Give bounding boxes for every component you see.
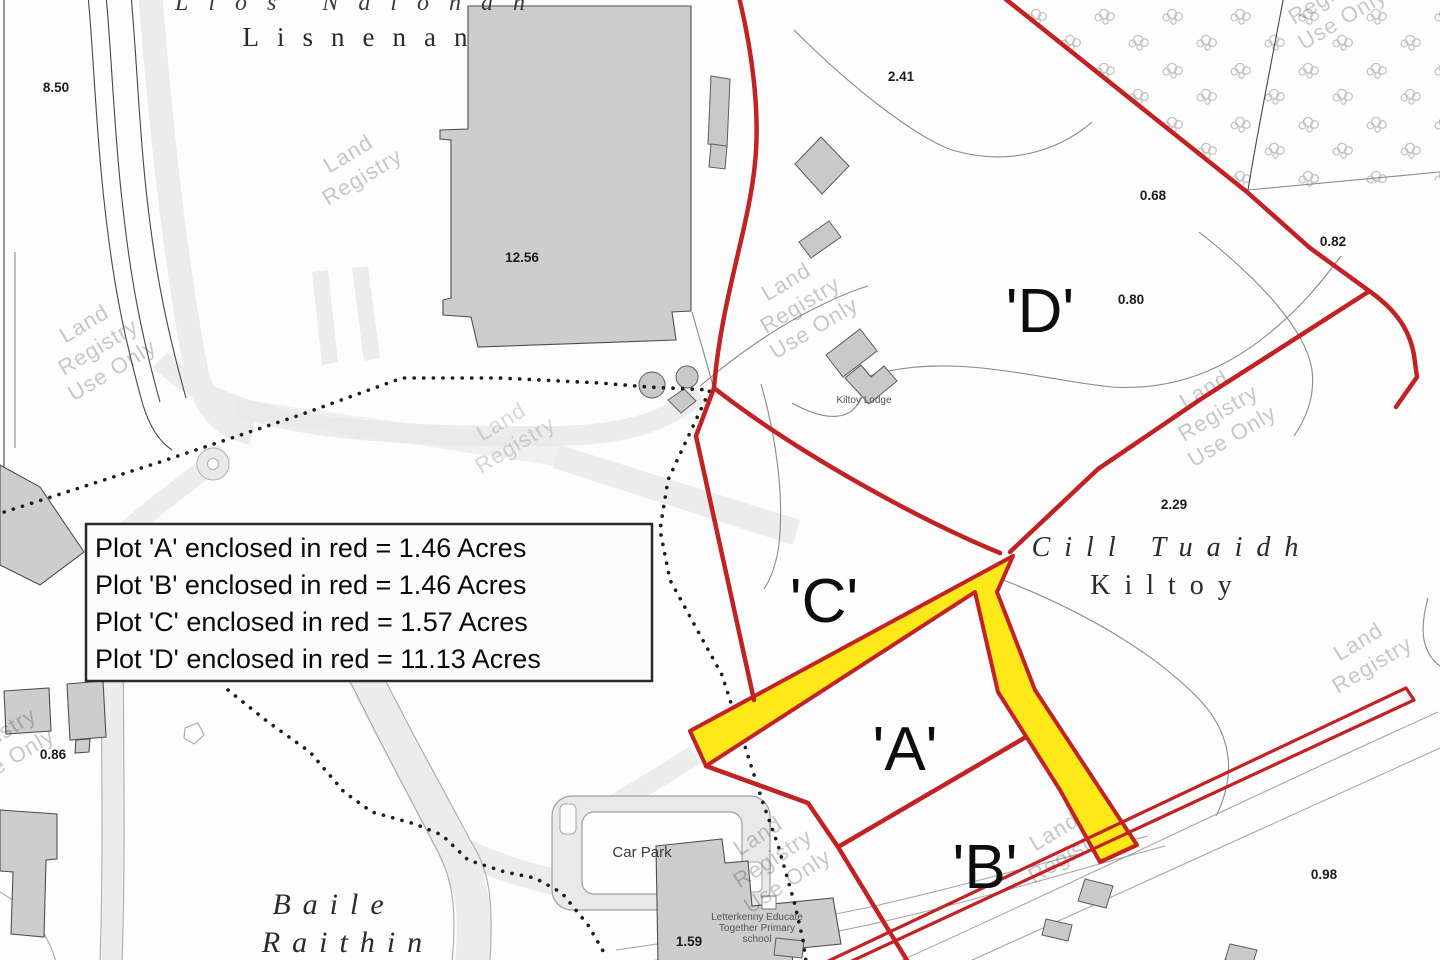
legend-line-plot-a: Plot 'A' enclosed in red = 1.46 Acres	[95, 533, 526, 563]
legend-line-plot-c: Plot 'C' enclosed in red = 1.57 Acres	[95, 607, 528, 637]
area-value: 0.98	[1311, 867, 1338, 882]
land-registry-map: Land Registry Land Registry Use Only Lan…	[0, 0, 1440, 960]
kiltoy-lodge-label: Kiltoy Lodge	[836, 395, 891, 406]
plot-d-label: 'D'	[1006, 277, 1074, 346]
area-value: 0.86	[40, 747, 67, 762]
area-value: 0.80	[1118, 292, 1144, 307]
large-building	[440, 6, 691, 347]
townland-baile: Baile	[272, 888, 395, 921]
plot-b-label: 'B'	[952, 833, 1017, 902]
townland-lisnenan-irish: Lios Naíonán	[174, 0, 545, 16]
legend-box: Plot 'A' enclosed in red = 1.46 Acres Pl…	[86, 524, 652, 681]
area-value: 12.56	[505, 250, 539, 265]
townland-raithin: Raithin	[261, 926, 434, 959]
townland-cill-tuaidh: Cill Tuaidh	[1032, 532, 1313, 563]
area-value: 2.41	[888, 69, 915, 84]
plot-a-label: 'A'	[872, 715, 937, 784]
legend-line-plot-b: Plot 'B' enclosed in red = 1.46 Acres	[95, 570, 526, 600]
area-value: 2.29	[1161, 497, 1187, 512]
school-label: Letterkenny Educate	[711, 912, 803, 923]
school-label: school	[743, 934, 772, 945]
townland-kiltoy: Kiltoy	[1090, 570, 1246, 601]
car-park-label: Car Park	[612, 844, 672, 861]
legend-line-plot-d: Plot 'D' enclosed in red = 11.13 Acres	[95, 644, 541, 674]
map-canvas: Land Registry Land Registry Use Only Lan…	[0, 0, 1440, 960]
area-value: 0.68	[1140, 188, 1167, 203]
townland-lisnenan: Lisnenan	[243, 22, 486, 52]
area-value: 1.59	[676, 934, 702, 949]
area-value: 0.82	[1320, 234, 1346, 249]
plot-c-label: 'C'	[790, 567, 858, 636]
area-value: 8.50	[43, 80, 69, 95]
school-label: Together Primary	[719, 923, 795, 934]
